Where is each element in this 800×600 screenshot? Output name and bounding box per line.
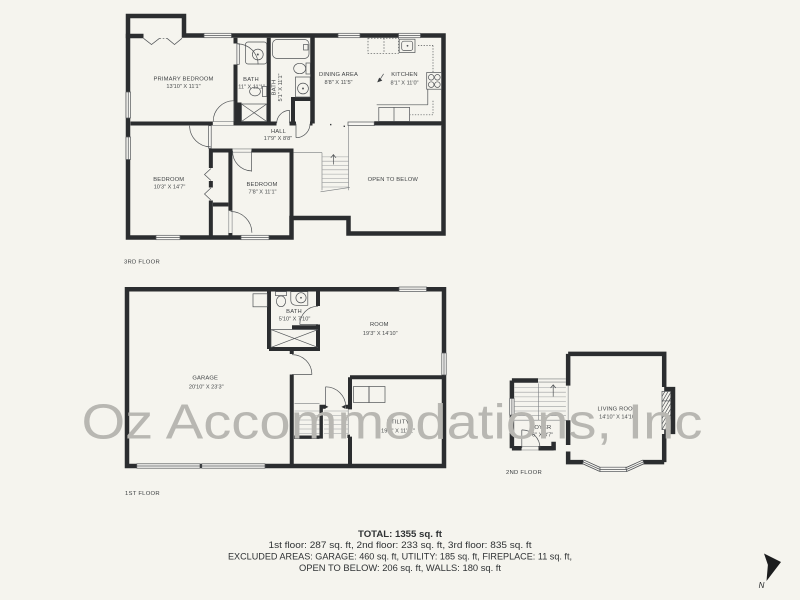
svg-text:BEDROOM: BEDROOM bbox=[153, 177, 184, 183]
svg-text:N: N bbox=[759, 581, 765, 590]
svg-text:1ST FLOOR: 1ST FLOOR bbox=[125, 491, 160, 497]
svg-text:10'3" X 14'7": 10'3" X 14'7" bbox=[154, 184, 186, 190]
svg-text:GARAGE: GARAGE bbox=[192, 375, 218, 381]
svg-text:HALL: HALL bbox=[271, 129, 287, 135]
svg-text:5'10" X 7'10": 5'10" X 7'10" bbox=[279, 317, 311, 323]
svg-text:DINING AREA: DINING AREA bbox=[319, 72, 358, 78]
svg-text:BATH: BATH bbox=[243, 77, 259, 83]
svg-text:1st floor: 287 sq. ft, 2nd flo: 1st floor: 287 sq. ft, 2nd floor: 233 sq… bbox=[269, 540, 532, 550]
svg-text:KITCHEN: KITCHEN bbox=[391, 72, 418, 78]
svg-text:PRIMARY BEDROOM: PRIMARY BEDROOM bbox=[153, 77, 213, 83]
svg-text:8'1" X 11'0": 8'1" X 11'0" bbox=[390, 81, 418, 87]
svg-text:19'3" X 14'10": 19'3" X 14'10" bbox=[363, 331, 398, 337]
svg-text:ROOM: ROOM bbox=[370, 322, 389, 328]
svg-text:11" X 11'1": 11" X 11'1" bbox=[238, 84, 265, 90]
svg-text:Oz Accommodations, Inc: Oz Accommodations, Inc bbox=[82, 395, 703, 450]
svg-text:2ND FLOOR: 2ND FLOOR bbox=[506, 470, 542, 476]
svg-text:EXCLUDED AREAS: GARAGE: 460 sq: EXCLUDED AREAS: GARAGE: 460 sq. ft, UTIL… bbox=[228, 552, 572, 562]
svg-text:13'10" X 11'1": 13'10" X 11'1" bbox=[166, 84, 200, 90]
svg-text:TOTAL: 1355 sq. ft: TOTAL: 1355 sq. ft bbox=[358, 529, 442, 539]
svg-text:17'9" X 8'8": 17'9" X 8'8" bbox=[264, 136, 293, 142]
svg-text:BATH: BATH bbox=[272, 80, 278, 96]
svg-text:OPEN TO BELOW: 206 sq. ft, WAL: OPEN TO BELOW: 206 sq. ft, WALLS: 180 sq… bbox=[299, 563, 501, 573]
svg-text:20'10" X 23'3": 20'10" X 23'3" bbox=[189, 385, 224, 391]
svg-text:BEDROOM: BEDROOM bbox=[246, 182, 277, 188]
svg-text:5'1" X 11'1": 5'1" X 11'1" bbox=[278, 73, 284, 101]
svg-text:7'8" X 11'1": 7'8" X 11'1" bbox=[248, 190, 276, 196]
svg-text:3RD FLOOR: 3RD FLOOR bbox=[124, 260, 160, 266]
svg-text:8'8" X 11'5": 8'8" X 11'5" bbox=[324, 80, 352, 86]
svg-text:BATH: BATH bbox=[286, 309, 302, 315]
svg-text:OPEN TO BELOW: OPEN TO BELOW bbox=[368, 177, 419, 183]
